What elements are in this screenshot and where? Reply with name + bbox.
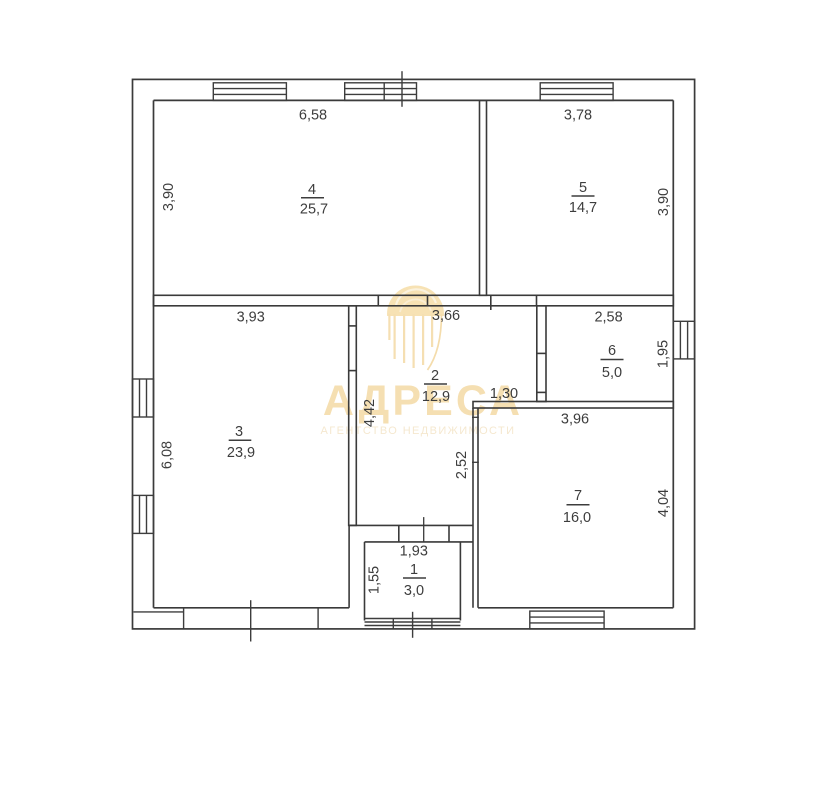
svg-text:3,90: 3,90: [161, 183, 177, 211]
svg-text:12,9: 12,9: [422, 389, 450, 405]
svg-text:2,58: 2,58: [594, 309, 622, 325]
svg-text:1: 1: [410, 562, 418, 578]
svg-text:3,0: 3,0: [404, 583, 424, 599]
svg-text:4: 4: [308, 182, 316, 198]
svg-text:3,78: 3,78: [564, 108, 592, 124]
svg-text:3: 3: [235, 424, 243, 440]
svg-text:25,7: 25,7: [300, 202, 328, 218]
svg-text:6,58: 6,58: [299, 108, 327, 124]
svg-text:16,0: 16,0: [563, 510, 591, 526]
svg-text:АГЕНТСТВО НЕДВИЖИМОСТИ: АГЕНТСТВО НЕДВИЖИМОСТИ: [321, 425, 516, 437]
svg-text:3,66: 3,66: [432, 308, 460, 324]
svg-text:5,0: 5,0: [602, 365, 622, 381]
svg-text:6: 6: [608, 343, 616, 359]
svg-text:4,42: 4,42: [362, 399, 378, 427]
svg-text:2,52: 2,52: [454, 451, 470, 479]
svg-text:6,08: 6,08: [160, 441, 176, 469]
svg-text:7: 7: [574, 488, 582, 504]
svg-text:1,55: 1,55: [367, 566, 383, 594]
svg-text:4,04: 4,04: [656, 489, 672, 517]
svg-text:1,30: 1,30: [490, 386, 518, 402]
svg-text:1,93: 1,93: [400, 544, 428, 560]
svg-text:3,90: 3,90: [656, 188, 672, 216]
svg-text:14,7: 14,7: [569, 200, 597, 216]
svg-text:23,9: 23,9: [227, 445, 255, 461]
svg-text:1,95: 1,95: [656, 340, 672, 368]
svg-text:3,96: 3,96: [561, 412, 589, 428]
svg-text:5: 5: [579, 180, 587, 196]
svg-text:2: 2: [431, 368, 439, 384]
svg-text:3,93: 3,93: [237, 310, 265, 326]
